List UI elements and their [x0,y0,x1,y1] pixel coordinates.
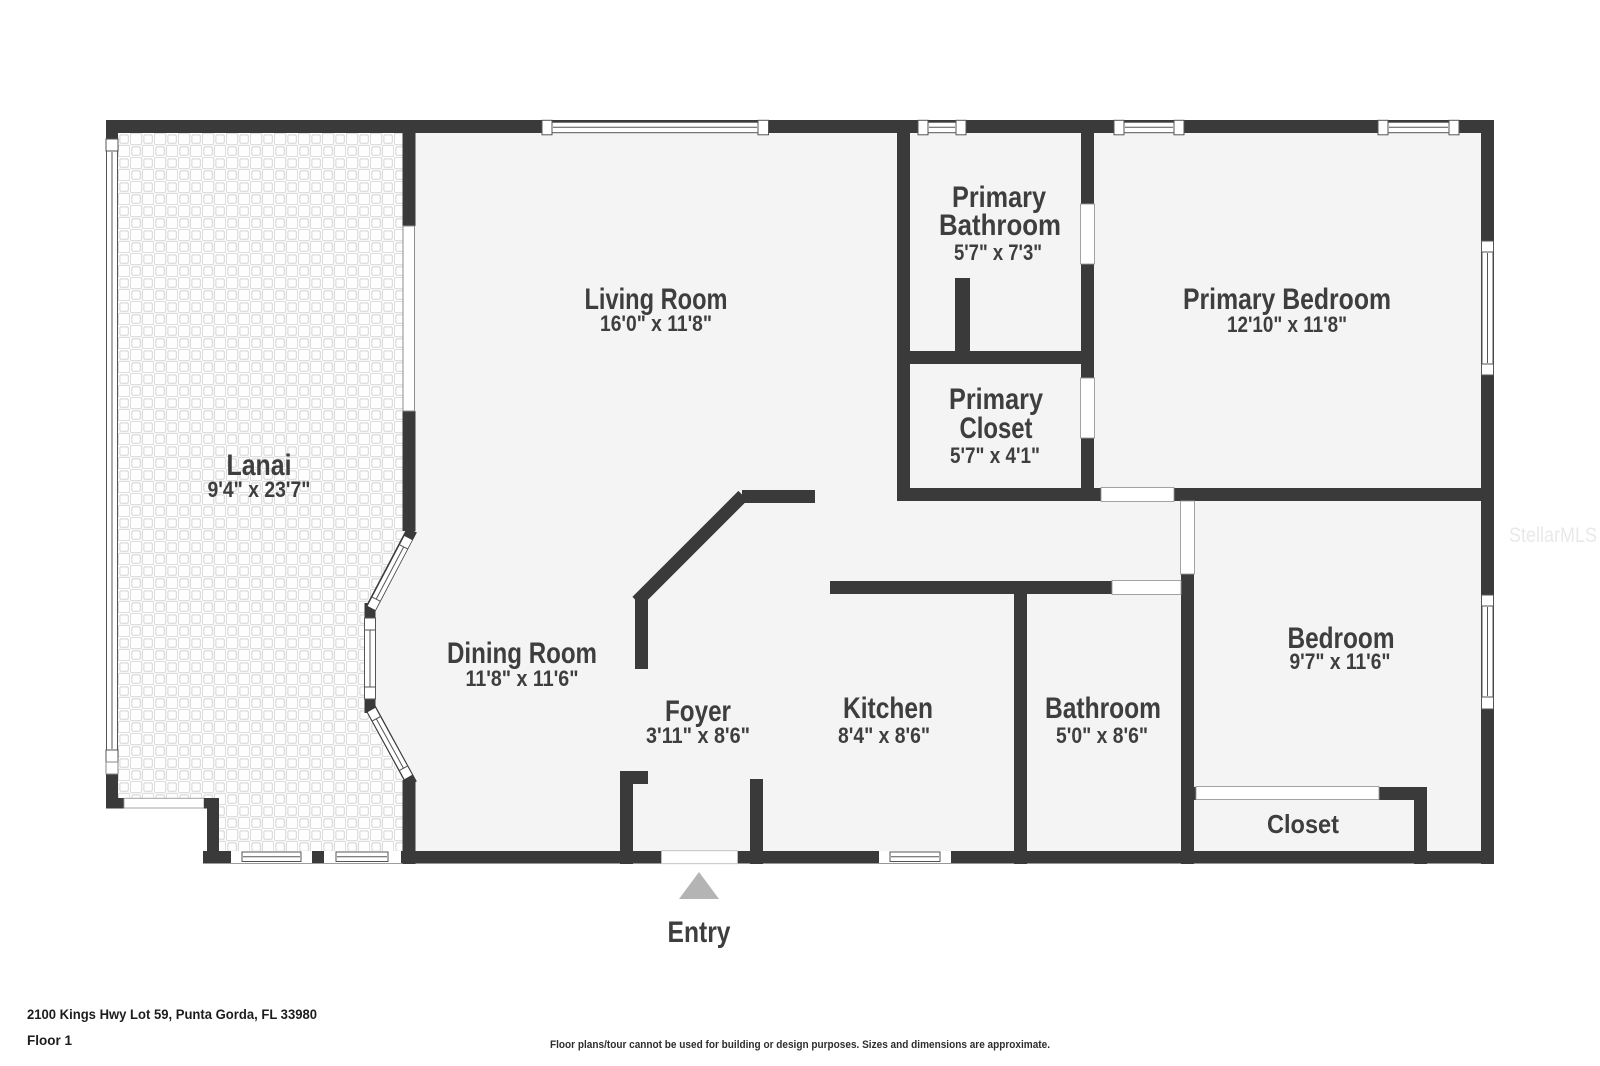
svg-text:9'7" x 11'6": 9'7" x 11'6" [1290,649,1391,674]
svg-text:Bathroom: Bathroom [1045,692,1161,725]
svg-text:Bathroom: Bathroom [939,209,1061,242]
svg-text:5'7" x 4'1": 5'7" x 4'1" [950,443,1040,468]
svg-text:Floor plans/tour cannot be use: Floor plans/tour cannot be used for buil… [550,1039,1050,1051]
svg-text:2100 Kings Hwy Lot 59, Punta G: 2100 Kings Hwy Lot 59, Punta Gorda, FL 3… [27,1007,317,1022]
svg-text:Entry: Entry [668,916,731,949]
svg-text:3'11" x 8'6": 3'11" x 8'6" [646,723,750,748]
svg-text:Floor 1: Floor 1 [27,1033,72,1048]
svg-text:Closet: Closet [1267,809,1339,839]
svg-text:Kitchen: Kitchen [843,692,933,725]
svg-text:11'8" x 11'6": 11'8" x 11'6" [466,666,579,691]
svg-text:Closet: Closet [960,412,1033,445]
svg-text:16'0" x 11'8": 16'0" x 11'8" [600,311,712,336]
svg-text:8'4" x 8'6": 8'4" x 8'6" [838,723,930,748]
svg-text:5'0" x 8'6": 5'0" x 8'6" [1056,723,1148,748]
svg-text:5'7" x 7'3": 5'7" x 7'3" [954,240,1042,265]
svg-text:9'4" x 23'7": 9'4" x 23'7" [208,477,311,502]
svg-text:StellarMLS: StellarMLS [1509,524,1597,547]
svg-text:12'10" x 11'8": 12'10" x 11'8" [1227,312,1347,337]
